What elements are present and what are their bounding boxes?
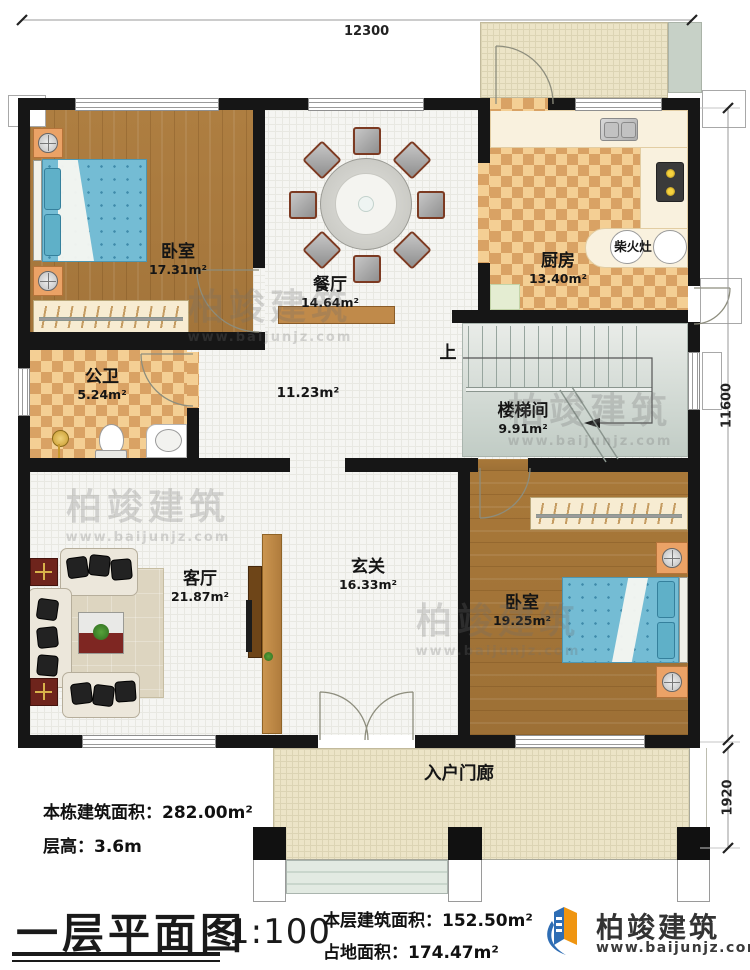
kitchen-counter-top xyxy=(490,110,688,148)
floor-height: 层高：3.6m xyxy=(43,832,142,857)
sofa-cushion xyxy=(70,682,93,705)
nightstand xyxy=(33,128,63,158)
building-total-area: 本栋建筑面积：282.00m² xyxy=(43,798,253,823)
title-underline xyxy=(12,952,220,962)
gas-stove xyxy=(656,162,684,202)
room-label-foyer: 玄关16.33m² xyxy=(318,558,418,592)
wardrobe-rail xyxy=(536,514,683,518)
window-living-bottom xyxy=(82,735,216,748)
table-ornament-icon xyxy=(31,679,57,705)
wall-bathroom-right xyxy=(187,408,199,458)
burner-icon xyxy=(666,187,675,196)
dimension-right-upper: 11600 xyxy=(720,381,735,431)
window-bathroom-left xyxy=(18,368,30,416)
wall-dining-kitchen-lower xyxy=(478,263,490,310)
stair-treads xyxy=(468,326,650,387)
dim-tick xyxy=(723,843,733,853)
footprint-area: 占地面积：174.47m² xyxy=(323,938,499,963)
lamp-icon xyxy=(662,548,682,568)
kitchen-mat xyxy=(490,284,520,310)
sink-basin xyxy=(604,122,619,138)
side-table xyxy=(30,558,58,586)
bed-1-pillow xyxy=(44,168,61,210)
plant-icon xyxy=(264,652,273,661)
wall-bedroom1-dining xyxy=(253,110,265,268)
watermark: 柏竣建筑www.baijunjz.com xyxy=(28,478,268,545)
sofa-cushion xyxy=(36,598,60,622)
terrace-floor xyxy=(480,22,668,98)
wall-hall-bottom-left xyxy=(18,458,290,472)
window-kitchen-top xyxy=(575,98,662,111)
dimension-right-lower: 1920 xyxy=(721,776,736,820)
porch-column xyxy=(448,827,482,860)
tv xyxy=(246,600,252,652)
entry-steps xyxy=(286,860,448,894)
wall-left xyxy=(18,98,30,748)
room-label-hallway: 11.23m² xyxy=(260,386,356,402)
dimension-top: 12300 xyxy=(344,24,389,39)
burner-icon xyxy=(666,169,675,178)
sofa-cushion xyxy=(88,554,111,577)
bathroom-sink xyxy=(155,429,182,452)
table-ornament-icon xyxy=(31,559,57,585)
shower-arm xyxy=(58,444,60,458)
column-base xyxy=(253,858,286,902)
column-base xyxy=(448,858,482,902)
kitchen-side-door-gap xyxy=(688,286,700,322)
wall-dining-kitchen-upper xyxy=(478,110,490,163)
window-bedroom2-bottom xyxy=(515,735,645,748)
kitchen-side-landing xyxy=(700,278,742,324)
shower-head xyxy=(52,430,69,447)
room-label-bedroom-1: 卧室17.31m² xyxy=(118,243,238,277)
dim-tick xyxy=(723,743,733,753)
watermark: 柏竣建筑www.baijunjz.com xyxy=(378,592,618,659)
lamp-icon xyxy=(662,672,682,692)
nightstand xyxy=(33,266,63,296)
bed-2-pillow xyxy=(657,581,675,618)
dining-table-center xyxy=(358,196,374,212)
plant-icon xyxy=(93,624,109,640)
stair-up-label: 上 xyxy=(436,344,460,364)
watermark: 柏竣建筑www.baijunjz.com xyxy=(150,278,390,345)
bed-1-headboard xyxy=(33,160,42,261)
sofa-top xyxy=(60,548,138,596)
wall-bedroom2-top xyxy=(528,458,700,472)
sofa-cushion xyxy=(92,684,115,707)
brand-url: www.baijunjz.com xyxy=(596,940,750,956)
room-label-porch: 入户门廊 xyxy=(394,764,524,784)
dining-chair xyxy=(289,191,317,219)
dim-tick xyxy=(17,15,27,25)
flue-box-top-right xyxy=(702,90,746,128)
room-label-living: 客厅21.87m² xyxy=(150,570,250,604)
wood-stove-label: 柴火灶 xyxy=(604,240,662,254)
bedroom-2-door-threshold xyxy=(478,459,528,471)
sofa-cushion xyxy=(36,626,59,649)
entry-door-gap xyxy=(318,735,415,748)
column-base xyxy=(677,858,710,902)
sofa-cushion xyxy=(36,654,59,677)
bed-2-pillow xyxy=(657,622,675,659)
sheet-scale: 1:100 xyxy=(228,912,331,952)
nightstand xyxy=(656,666,688,698)
wardrobe-bedroom-2 xyxy=(530,497,688,530)
dim-tick xyxy=(723,735,733,745)
window-bedroom1-top xyxy=(75,98,219,111)
porch-column xyxy=(677,827,710,860)
sofa-cushion xyxy=(110,558,133,581)
tv-wall xyxy=(262,534,282,734)
side-table xyxy=(30,678,58,706)
brand-logo-icon xyxy=(540,903,586,957)
window-dining-top xyxy=(308,98,424,111)
kitchen-sink xyxy=(600,118,638,141)
lamp-icon xyxy=(38,271,58,291)
terrace-step xyxy=(668,22,702,93)
sofa-cushion xyxy=(114,680,136,702)
nightstand xyxy=(656,542,688,574)
kitchen-opening-threshold xyxy=(478,163,490,263)
sofa-bottom xyxy=(62,672,140,718)
bed-2-headboard xyxy=(679,577,688,663)
watermark: 柏竣建筑www.baijunjz.com xyxy=(470,382,710,449)
lamp-icon xyxy=(38,133,58,153)
dining-chair xyxy=(417,191,445,219)
porch-column xyxy=(253,827,286,860)
bed-1-pillow xyxy=(44,214,61,256)
room-label-kitchen: 厨房13.40m² xyxy=(506,252,610,286)
floor-plan: { "title": {"text": "一层平面图", "scale": "1… xyxy=(0,0,750,970)
floor-area: 本层建筑面积：152.50m² xyxy=(323,906,533,931)
wall-kitchen-bottom xyxy=(452,310,700,323)
room-label-bathroom: 公卫5.24m² xyxy=(52,368,152,402)
sink-basin xyxy=(621,122,636,138)
dining-chair xyxy=(353,127,381,155)
bathroom-door-threshold xyxy=(187,352,199,408)
terrace-door-threshold xyxy=(490,98,548,111)
sofa-cushion xyxy=(66,556,90,580)
